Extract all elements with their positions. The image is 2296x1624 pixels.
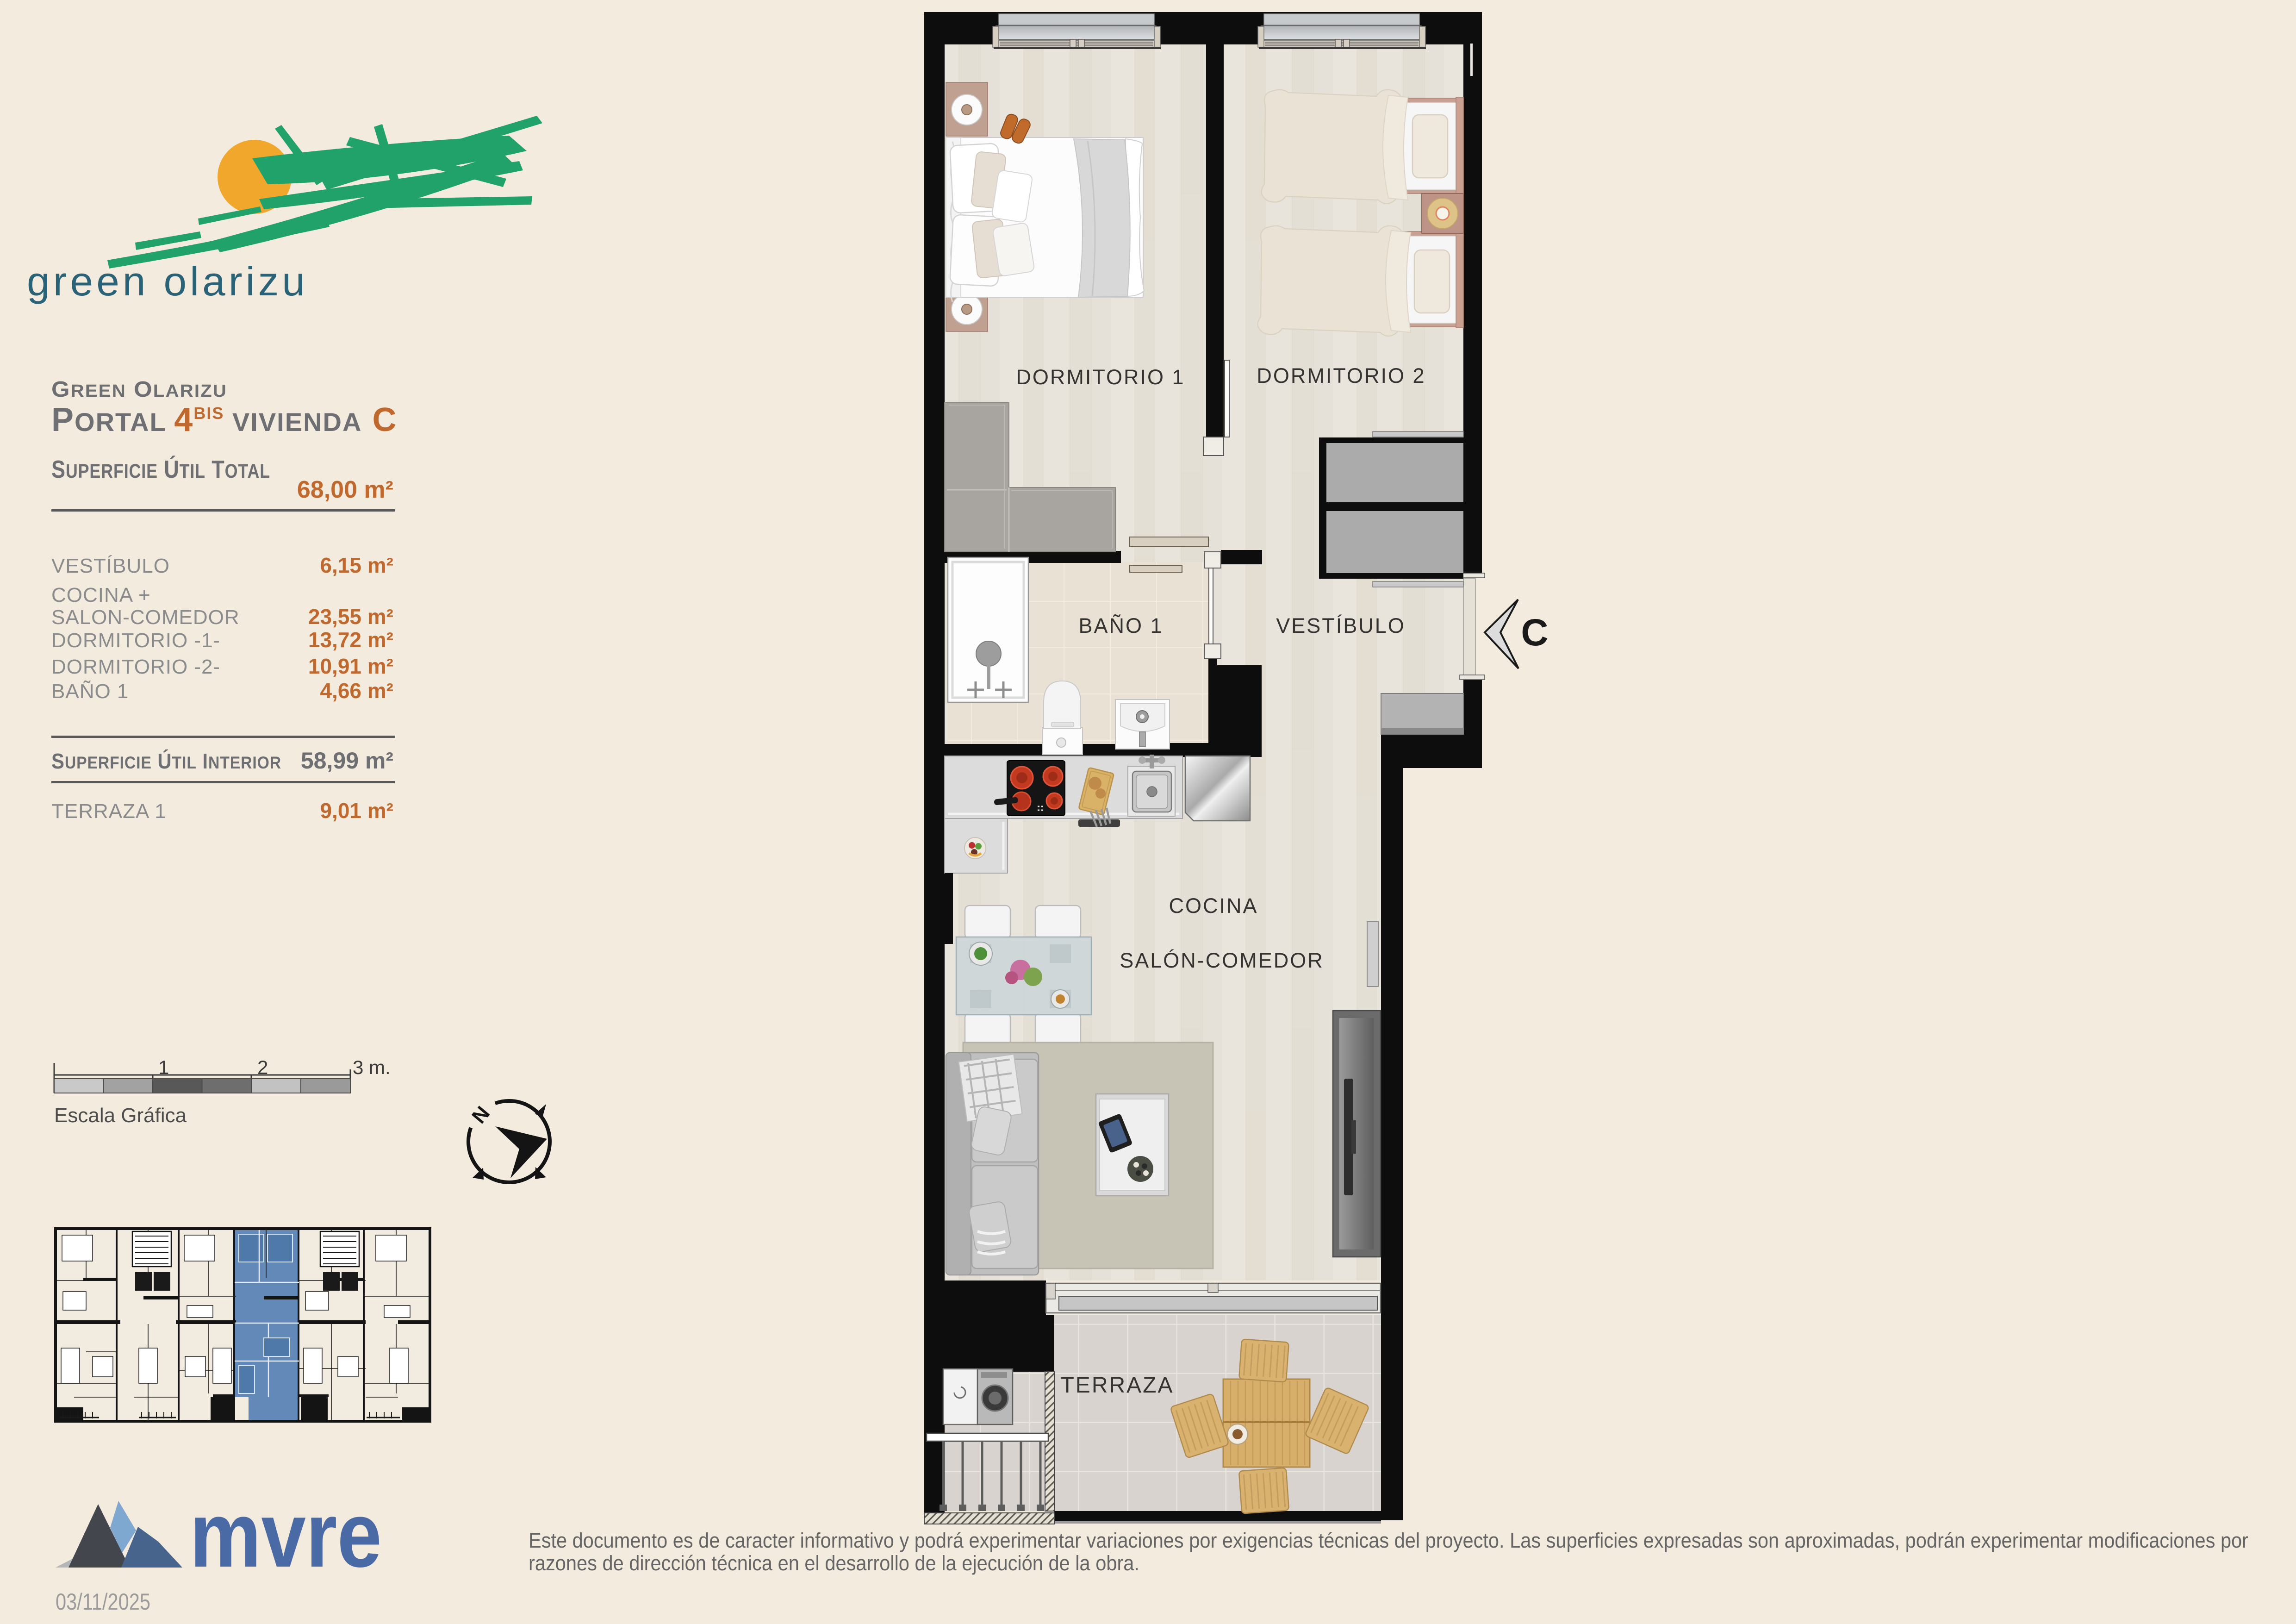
- svg-text:Escala Gráfica: Escala Gráfica: [54, 1104, 187, 1127]
- svg-text:SALON-COMEDOR: SALON-COMEDOR: [51, 606, 240, 629]
- svg-text:1: 1: [158, 1056, 169, 1078]
- svg-text:mvre: mvre: [190, 1483, 382, 1587]
- svg-text:4,66 m²: 4,66 m²: [320, 679, 393, 703]
- svg-text:3 m.: 3 m.: [353, 1056, 391, 1078]
- svg-text:DORMITORIO 1: DORMITORIO 1: [1016, 365, 1185, 389]
- svg-text:2: 2: [257, 1056, 268, 1078]
- svg-text:9,01 m²: 9,01 m²: [320, 799, 393, 823]
- svg-text:COCINA +: COCINA +: [51, 584, 151, 606]
- svg-text:C: C: [1521, 612, 1548, 654]
- svg-text:SALÓN-COMEDOR: SALÓN-COMEDOR: [1120, 949, 1324, 972]
- svg-text:DORMITORIO -2-: DORMITORIO -2-: [51, 656, 220, 678]
- svg-text:58,99 m²: 58,99 m²: [301, 748, 393, 774]
- svg-text:13,72 m²: 13,72 m²: [308, 628, 393, 652]
- svg-text:TERRAZA 1: TERRAZA 1: [51, 800, 167, 823]
- svg-text:10,91 m²: 10,91 m²: [308, 654, 393, 678]
- svg-text:VESTÍBULO: VESTÍBULO: [1276, 614, 1406, 637]
- svg-text:TERRAZA: TERRAZA: [1060, 1373, 1174, 1398]
- svg-text:razones de dirección técnica e: razones de dirección técnica en el desar…: [529, 1551, 1139, 1575]
- svg-text:green olarizu: green olarizu: [27, 258, 308, 304]
- svg-text:23,55 m²: 23,55 m²: [308, 605, 393, 629]
- svg-text:DORMITORIO 2: DORMITORIO 2: [1257, 364, 1425, 387]
- svg-text:68,00 m²: 68,00 m²: [297, 476, 393, 503]
- svg-text:BAÑO 1: BAÑO 1: [1078, 614, 1163, 637]
- svg-text:COCINA: COCINA: [1169, 894, 1258, 918]
- svg-text:03/11/2025: 03/11/2025: [56, 1589, 150, 1615]
- svg-text:6,15 m²: 6,15 m²: [320, 553, 393, 577]
- svg-text:Este documento es de caracter: Este documento es de caracter informativ…: [529, 1529, 2248, 1552]
- svg-text:VESTÍBULO: VESTÍBULO: [51, 555, 170, 577]
- svg-text:BAÑO 1: BAÑO 1: [51, 680, 129, 703]
- svg-text:DORMITORIO -1-: DORMITORIO -1-: [51, 629, 220, 652]
